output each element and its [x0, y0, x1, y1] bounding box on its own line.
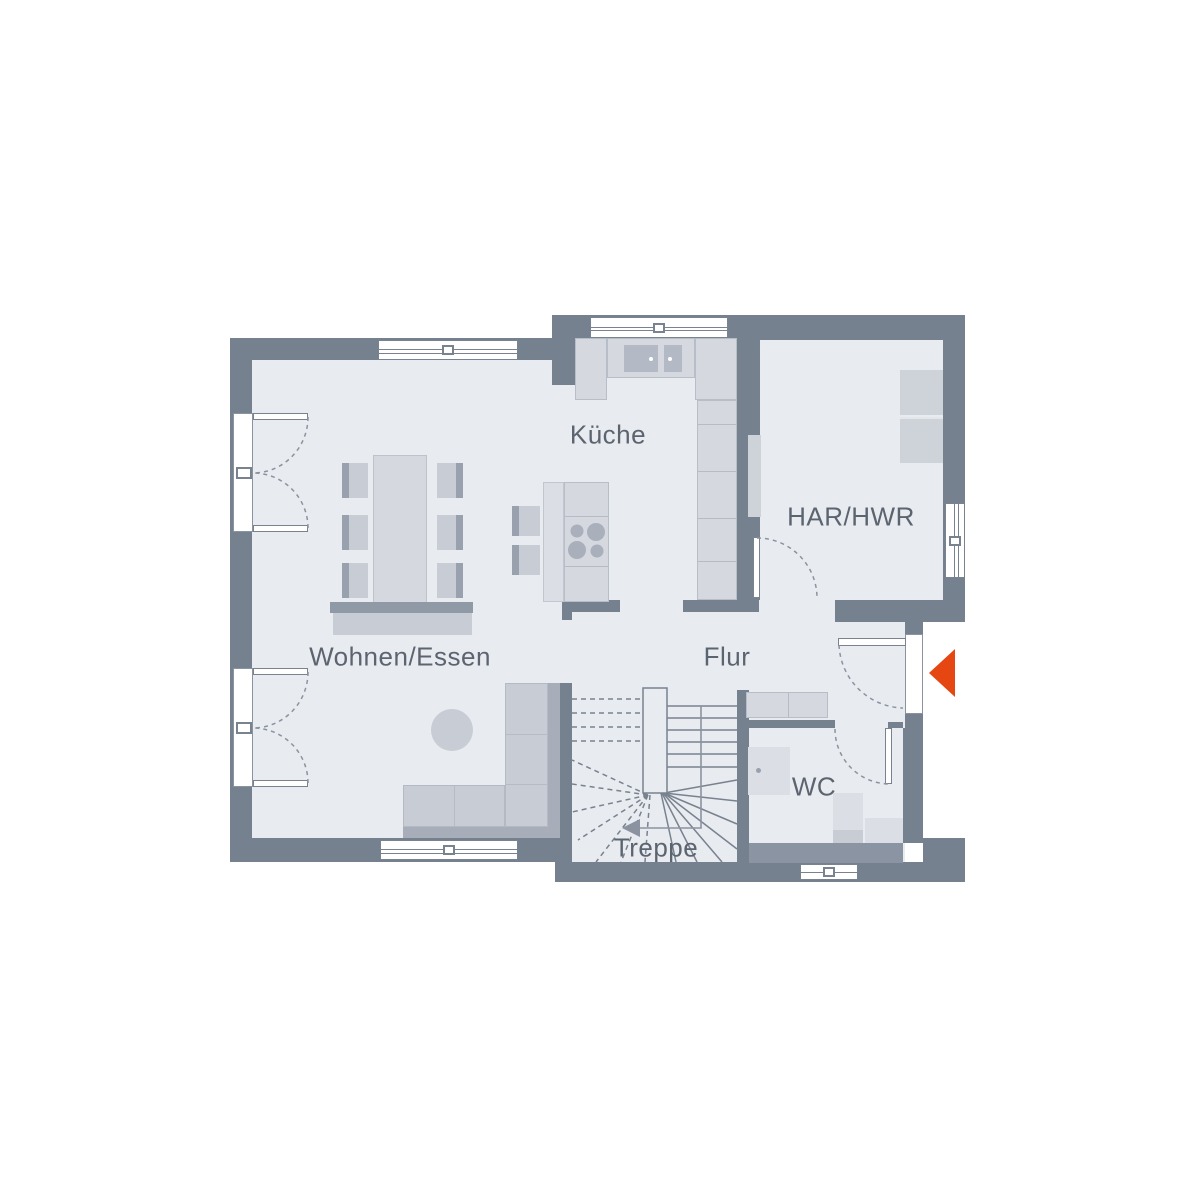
window-mullion — [823, 867, 835, 877]
window-living-bottom — [380, 840, 518, 860]
counter-divider — [698, 424, 736, 425]
round-rug — [431, 709, 473, 751]
hall-sideboard — [746, 692, 828, 718]
dining-chair — [342, 563, 368, 598]
floor-plan: Küche HAR/HWR Wohnen/Essen Flur WC Trepp… — [0, 0, 1200, 1200]
stool-seat — [519, 506, 540, 536]
dining-chair — [437, 463, 463, 498]
french-door-upper-leaf-top — [253, 413, 308, 420]
window-mullion — [443, 845, 455, 855]
wall-living-stairs — [558, 683, 572, 862]
wall-bottom-south — [555, 862, 965, 882]
kitchen-island-left — [543, 482, 564, 602]
kitchen-counter-right — [697, 400, 737, 600]
room-label-flur: Flur — [704, 642, 751, 673]
entrance-arrow-icon — [929, 649, 955, 697]
har-door-leaf — [753, 537, 760, 598]
kitchen-corner-unit — [695, 338, 737, 400]
sink-basin-small — [664, 345, 682, 372]
french-door-upper-leaf-bottom — [253, 525, 308, 532]
wall-kitchen-step — [552, 315, 575, 385]
chair-seat — [437, 563, 456, 598]
stool-back — [512, 506, 519, 536]
dining-chair — [437, 563, 463, 598]
wall-flur-right-lower — [905, 714, 923, 728]
kitchen-tall-unit — [575, 338, 607, 400]
chair-back — [456, 515, 463, 550]
french-door-lower-leaf-top — [253, 668, 308, 675]
french-door-lower-leaf-bottom — [253, 780, 308, 787]
french-door-upper-handle — [236, 467, 252, 479]
sideboard-body — [333, 613, 472, 635]
har-appliance — [900, 370, 943, 415]
dining-chair — [342, 463, 368, 498]
har-appliance — [900, 417, 943, 463]
window-wc-bottom — [800, 864, 858, 880]
sink-drain — [668, 357, 672, 361]
window-living-top — [378, 340, 518, 360]
counter-divider — [698, 518, 736, 519]
wall-har-bottom-inner — [683, 600, 759, 612]
chair-back — [342, 463, 349, 498]
chair-seat — [349, 515, 368, 550]
hall-sideboard-divider — [788, 693, 789, 717]
sofa-horizontal-seats — [403, 785, 505, 827]
chair-seat — [349, 463, 368, 498]
kitchen-sink-module — [607, 338, 695, 378]
wc-basin-drain — [756, 768, 761, 773]
chair-seat — [437, 463, 456, 498]
sofa-cushion-divider — [506, 734, 547, 735]
wc-door-leaf — [885, 728, 892, 784]
room-label-treppe: Treppe — [614, 833, 698, 864]
sideboard-bar — [330, 602, 473, 613]
wc-corner-unit — [865, 818, 903, 843]
wc-toilet-tank — [833, 830, 863, 843]
sofa-vertical-seats — [505, 683, 548, 827]
room-label-wohnen-essen: Wohnen/Essen — [309, 642, 491, 673]
sofa-backrest-bottom — [403, 827, 560, 838]
wall-har-bottom — [835, 600, 965, 622]
dining-chair — [342, 515, 368, 550]
window-kitchen-top — [590, 317, 728, 338]
kitchen-island-right — [564, 482, 609, 602]
wall-wc-right — [903, 728, 923, 843]
window-mullion — [949, 536, 961, 546]
floor-plan-canvas: Küche HAR/HWR Wohnen/Essen Flur WC Trepp… — [0, 0, 1200, 1200]
window-mullion — [653, 323, 665, 333]
chair-back — [456, 463, 463, 498]
wc-washbasin — [748, 747, 790, 795]
entrance-door-leaf — [838, 638, 906, 646]
island-divider — [565, 516, 608, 517]
window-mullion — [442, 345, 454, 355]
wall-flur-right-upper — [905, 622, 923, 634]
sink-drain — [649, 357, 653, 361]
wc-toilet-seat — [833, 793, 863, 830]
sofa-backrest-right — [548, 683, 560, 838]
chair-seat — [349, 563, 368, 598]
sofa-cushion-divider — [506, 784, 547, 785]
chair-back — [342, 515, 349, 550]
chair-back — [456, 563, 463, 598]
wall-wc-top — [749, 720, 835, 728]
room-label-wc: WC — [792, 772, 836, 803]
island-stool — [512, 545, 540, 575]
entrance-door-opening — [905, 634, 923, 714]
sofa-cushion-divider — [454, 786, 455, 826]
counter-divider — [698, 561, 736, 562]
counter-divider — [698, 471, 736, 472]
har-wall-unit — [748, 435, 761, 517]
room-label-kueche: Küche — [570, 420, 646, 451]
island-divider — [565, 566, 608, 567]
stool-back — [512, 545, 519, 575]
dining-chair — [437, 515, 463, 550]
room-label-har-hwr: HAR/HWR — [787, 502, 915, 533]
chair-back — [342, 563, 349, 598]
chair-seat — [437, 515, 456, 550]
island-stool — [512, 506, 540, 536]
stool-seat — [519, 545, 540, 575]
window-har-right — [945, 503, 965, 578]
wall-wc-bottom-band — [749, 843, 903, 863]
wall-island-stub-leg — [562, 612, 572, 620]
french-door-lower-handle — [236, 722, 252, 734]
